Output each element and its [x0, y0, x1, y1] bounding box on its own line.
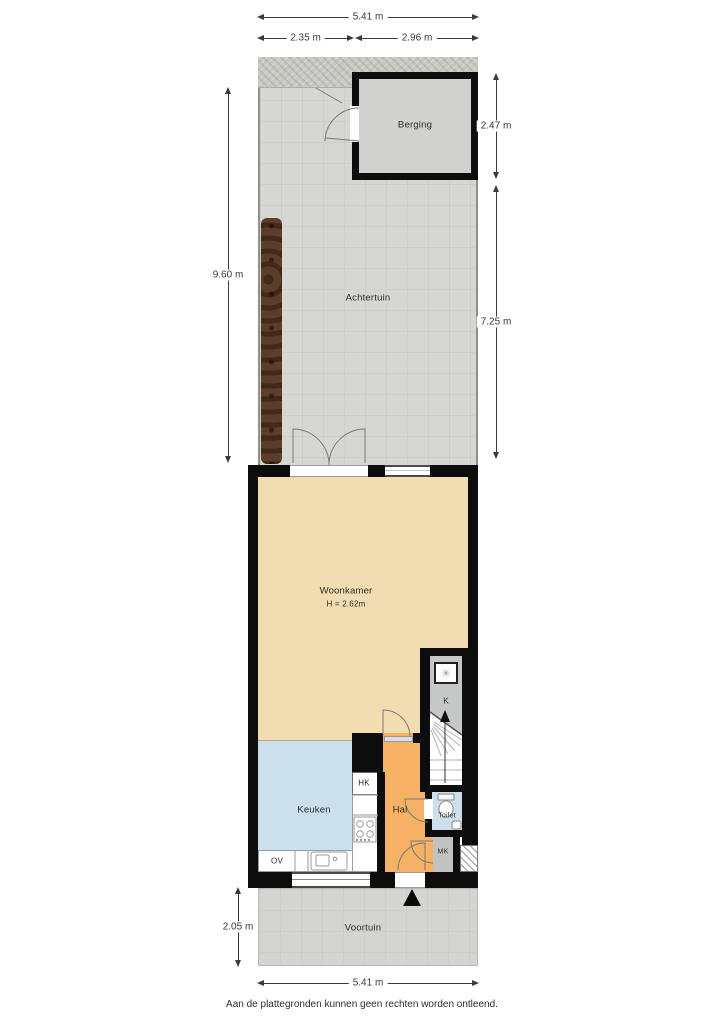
wall-top-2 — [368, 465, 385, 477]
dimension-bottom-total-label: 5.41 m — [349, 978, 388, 989]
keuken-room — [258, 740, 352, 850]
entrance-porch — [460, 845, 478, 872]
dimension-garden-right-label: 7.25 m — [477, 317, 516, 328]
hal-room-entry — [383, 837, 433, 872]
wall-toilet-left-a — [425, 792, 432, 800]
achtertuin-label: Achtertuin — [346, 293, 391, 304]
wall-left — [248, 465, 258, 888]
woonkamer-keuken-boundary — [258, 740, 352, 741]
dimension-garden-right: 7.25 m — [491, 186, 501, 458]
wall-hal-stairs — [420, 655, 430, 792]
dimension-top-total-label: 5.41 m — [349, 12, 388, 23]
front-window — [292, 872, 370, 888]
toilet-room — [432, 792, 462, 830]
wall-right-upper — [468, 465, 478, 648]
dimension-top-right-label: 2.96 m — [398, 33, 437, 44]
k-closet-label: K — [443, 697, 449, 706]
berging-label: Berging — [398, 120, 432, 131]
dimension-top-left-label: 2.35 m — [286, 33, 325, 44]
dimension-top-right-segment: 2.96 m — [356, 33, 478, 43]
rear-window — [385, 465, 430, 477]
dimension-garden-left-label: 9.60 m — [209, 270, 248, 281]
dimension-top-left-segment: 2.35 m — [258, 33, 353, 43]
hedge-border — [261, 218, 282, 464]
wall-top-1 — [248, 465, 290, 477]
dimension-berging-right: 2.47 m — [491, 74, 501, 178]
disclaimer-text: Aan de plattegronden kunnen geen rechten… — [0, 999, 724, 1010]
keuken-label: Keuken — [297, 805, 330, 816]
mk-closet-label: MK — [438, 849, 449, 856]
dimension-voortuin-left-label: 2.05 m — [219, 922, 258, 933]
staircase-area — [430, 712, 462, 788]
wall-keuken-hal-stub — [352, 733, 383, 772]
woonkamer-label: Woonkamer — [320, 586, 373, 597]
boiler-glyph: ✳ — [441, 667, 450, 680]
garden-doors-opening — [290, 465, 368, 477]
wall-bottom-1 — [248, 872, 292, 888]
ov-unit-label: OV — [271, 857, 283, 866]
dimension-garden-left: 9.60 m — [223, 88, 233, 462]
wall-keuken-hal — [377, 772, 385, 872]
voortuin-label: Voortuin — [345, 923, 381, 934]
dimension-voortuin-left: 2.05 m — [233, 888, 243, 966]
hk-closet-label: HK — [358, 779, 370, 788]
entrance-arrow-icon — [403, 889, 421, 906]
woonkamer-height-label: H = 2.62m — [327, 600, 366, 609]
toilet-label: Toilet — [438, 813, 456, 820]
wall-top-3 — [430, 465, 478, 477]
hal-door-sill — [384, 736, 413, 742]
hal-label: Hal — [393, 805, 408, 816]
wall-toilet-top — [425, 785, 462, 792]
wall-bottom-3 — [425, 872, 478, 888]
wall-right-lower — [462, 648, 478, 845]
wall-bottom-2 — [370, 872, 395, 888]
dimension-bottom-total: 5.41 m — [258, 978, 478, 988]
dimension-top-total: 5.41 m — [258, 12, 478, 22]
wall-mk-right — [453, 833, 460, 872]
boiler-icon: ✳ — [434, 662, 458, 684]
wall-hal-door-jamb — [413, 733, 420, 743]
dimension-berging-right-label: 2.47 m — [477, 121, 516, 132]
floorplan-page: 5.41 m 2.35 m 2.96 m 9.60 m 2.47 m 7.25 … — [0, 0, 724, 1024]
front-door-opening — [395, 872, 425, 888]
